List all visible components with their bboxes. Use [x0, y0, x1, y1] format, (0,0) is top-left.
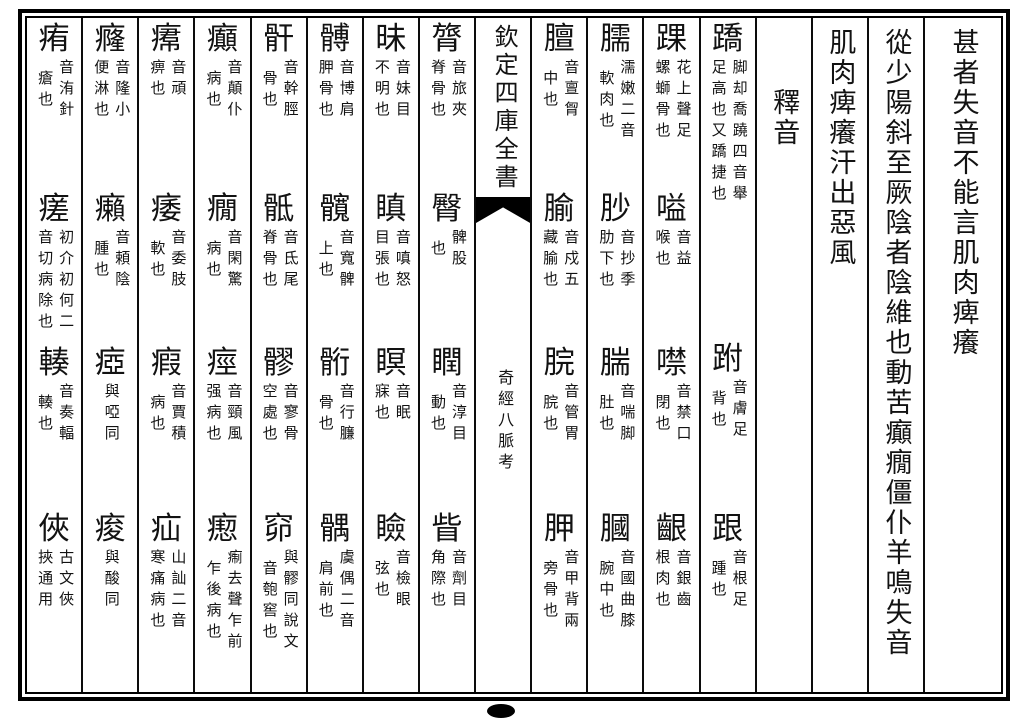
gloss-headword: 腨: [588, 346, 642, 381]
gloss-entry: 瞤音淳目動也: [420, 346, 474, 452]
gloss-entry: 臀髀股也: [420, 192, 474, 277]
gloss-headword: 瞼: [364, 512, 418, 547]
gloss-entry: 髃虞偶二音肩前也: [308, 512, 362, 639]
glossary-column: 骭音幹脛骨也骶音氐尾脊骨也髎音寥骨空處也窌與髎同說文音匏窖也: [250, 18, 306, 692]
gloss-annotation: 音洧針瘡也: [33, 59, 75, 123]
gloss-entry: 膂音旅夾脊骨也: [420, 22, 474, 128]
glossary-column: 蹻脚却喬蹺四音舉足高也又蹻捷也跗音膚足背也跟音根足踵也: [699, 18, 755, 692]
gloss-annotation: 音喘脚肚也: [594, 383, 636, 447]
gloss-annotation: 濡嫩二音軟肉也: [594, 59, 636, 144]
glossary-column: 膂音旅夾脊骨也臀髀股也瞤音淳目動也眥音劑目角際也: [418, 18, 474, 692]
gloss-annotation: 與酸同: [100, 549, 121, 613]
gloss-entry: 膻音亶胷中也: [532, 22, 586, 128]
gloss-annotation: 音委肢軟也: [145, 229, 187, 293]
page-columns: 甚者失音不能言肌肉痺癢從少陽斜至厥陰者陰維也動苦癲癇僵仆羊鳴失音肌肉痺癢汗出惡風…: [25, 16, 1003, 694]
gloss-headword: 𤸷: [139, 22, 193, 57]
glossary-column: 癲音顛仆病也癇音閑驚病也痙音頸風强病也瘛痸去聲乍前乍後病也: [193, 18, 249, 692]
gloss-annotation: 音劑目角際也: [426, 549, 468, 613]
gloss-annotation: 音銀齒根肉也: [650, 549, 692, 613]
gloss-entry: 胛音甲背兩旁骨也: [532, 512, 586, 639]
gloss-annotation: 音膚足背也: [707, 379, 749, 443]
page-edge-ink-dot-icon: [487, 704, 515, 718]
gloss-headword: 瞤: [420, 346, 474, 381]
gloss-entry: 䯒音行臁骨也: [308, 346, 362, 452]
gloss-headword: 䏚: [588, 192, 642, 227]
gloss-headword: 痠: [83, 512, 137, 547]
main-text-line-3: 肌肉痺癢汗出惡風: [811, 18, 867, 692]
main-text-line-1: 甚者失音不能言肌肉痺癢: [923, 18, 1001, 692]
gloss-headword: 膂: [420, 22, 474, 57]
gloss-entry: 俠古文俠挾通用: [27, 512, 81, 618]
gloss-annotation: 音甲背兩旁骨也: [538, 549, 580, 634]
gloss-entry: 腨音喘脚肚也: [588, 346, 642, 452]
gloss-annotation: 痸去聲乍前乍後病也: [201, 549, 243, 655]
gloss-annotation: 音眠寐也: [370, 383, 412, 426]
gloss-headword: 窌: [252, 512, 306, 547]
gloss-headword: 踝: [644, 22, 698, 57]
gloss-entry: 瘥初介初何二音切病除也: [27, 192, 81, 340]
glossary-column: 膻音亶胷中也腧音戍五藏腧也脘音管胃脘也胛音甲背兩旁骨也: [530, 18, 586, 692]
glossary-column: 昧音妹目不明也瞋音嗔怒目張也瞑音眠寐也瞼音檢眼弦也: [362, 18, 418, 692]
gloss-annotation: 音戍五藏腧也: [538, 229, 580, 293]
gloss-headword: 髃: [308, 512, 362, 547]
gloss-headword: 腧: [532, 192, 586, 227]
gloss-entry: 癃音隆小便淋也: [83, 22, 137, 128]
gloss-annotation: 音行臁骨也: [314, 383, 356, 447]
gloss-annotation: 與啞同: [100, 383, 121, 447]
gloss-entry: 窌與髎同說文音匏窖也: [252, 512, 306, 660]
gloss-entry: 痏音洧針瘡也: [27, 22, 81, 128]
gloss-headword: 癲: [195, 22, 249, 57]
gloss-entry: 癩音頼陰腫也: [83, 192, 137, 298]
gloss-entry: 腧音戍五藏腧也: [532, 192, 586, 298]
gloss-annotation: 音閑驚病也: [201, 229, 243, 293]
gloss-annotation: 音幹脛骨也: [258, 59, 300, 123]
gloss-entry: 髎音寥骨空處也: [252, 346, 306, 452]
gloss-headword: 瘂: [83, 346, 137, 381]
gloss-entry: 髆音博肩胛骨也: [308, 22, 362, 128]
gloss-annotation: 音博肩胛骨也: [314, 59, 356, 123]
gloss-entry: 疝山訕二音寒痛病也: [139, 512, 193, 639]
gloss-entry: 踝花上聲足螺螄骨也: [644, 22, 698, 149]
gloss-entry: 痠與酸同: [83, 512, 137, 618]
gloss-headword: 跟: [701, 512, 755, 547]
gloss-entry: 髖音寬髀上也: [308, 192, 362, 298]
glossary-column: 髆音博肩胛骨也髖音寬髀上也䯒音行臁骨也髃虞偶二音肩前也: [306, 18, 362, 692]
gloss-entry: 𤸷音頑痹也: [139, 22, 193, 107]
gloss-annotation: 音根足踵也: [707, 549, 749, 613]
gloss-entry: 輳音奏輻輳也: [27, 346, 81, 452]
gloss-annotation: 山訕二音寒痛病也: [145, 549, 187, 634]
gloss-headword: 臑: [588, 22, 642, 57]
gloss-entry: 蹻脚却喬蹺四音舉足高也又蹻捷也: [701, 22, 755, 212]
main-text-line-1-text: 甚者失音不能言肌肉痺癢: [950, 28, 977, 358]
gloss-headword: 嗌: [644, 192, 698, 227]
gloss-headword: 俠: [27, 512, 81, 547]
section-heading: 釋音: [755, 18, 811, 692]
gloss-entry: 嗌音益喉也: [644, 192, 698, 277]
gloss-headword: 痙: [195, 346, 249, 381]
glossary-column: 癃音隆小便淋也癩音頼陰腫也瘂與啞同痠與酸同: [81, 18, 137, 692]
gloss-headword: 眥: [420, 512, 474, 547]
main-text-line-2: 從少陽斜至厥陰者陰維也動苦癲癇僵仆羊鳴失音: [867, 18, 923, 692]
gloss-headword: 髖: [308, 192, 362, 227]
main-text-line-2-text: 從少陽斜至厥陰者陰維也動苦癲癇僵仆羊鳴失音: [882, 28, 909, 658]
gloss-entry: 癲音顛仆病也: [195, 22, 249, 128]
gloss-entry: 齦音銀齒根肉也: [644, 512, 698, 618]
gloss-entry: 癇音閑驚病也: [195, 192, 249, 298]
gloss-annotation: 音頸風强病也: [201, 383, 243, 447]
gloss-annotation: 虞偶二音肩前也: [314, 549, 356, 634]
glossary-column: 臑濡嫩二音軟肉也䏚音抄季肋下也腨音喘脚肚也膕音國曲膝腕中也: [586, 18, 642, 692]
gloss-entry: 骭音幹脛骨也: [252, 22, 306, 128]
gloss-headword: 痿: [139, 192, 193, 227]
page-frame: 甚者失音不能言肌肉痺癢從少陽斜至厥陰者陰維也動苦癲癇僵仆羊鳴失音肌肉痺癢汗出惡風…: [18, 9, 1010, 701]
gloss-headword: 輳: [27, 346, 81, 381]
gloss-annotation: 音旅夾脊骨也: [426, 59, 468, 123]
gloss-headword: 癩: [83, 192, 137, 227]
book-title: 欽定四庫全書: [491, 24, 515, 192]
gloss-entry: 瘂與啞同: [83, 346, 137, 452]
gloss-entry: 骶音氐尾脊骨也: [252, 192, 306, 298]
gloss-entry: 痿音委肢軟也: [139, 192, 193, 298]
gloss-annotation: 音隆小便淋也: [89, 59, 131, 123]
gloss-annotation: 音亶胷中也: [538, 59, 580, 123]
gutter-column: 欽定四庫全書奇經八脈考: [474, 18, 530, 692]
gloss-entry: 膕音國曲膝腕中也: [588, 512, 642, 639]
gloss-headword: 癇: [195, 192, 249, 227]
gloss-headword: 癃: [83, 22, 137, 57]
work-title: 奇經八脈考: [495, 369, 511, 474]
gloss-annotation: 音顛仆病也: [201, 59, 243, 123]
gloss-annotation: 音頑痹也: [145, 59, 187, 102]
gloss-headword: 瘥: [27, 192, 81, 227]
gloss-annotation: 音淳目動也: [426, 383, 468, 447]
gloss-headword: 昧: [364, 22, 418, 57]
gloss-headword: 瞑: [364, 346, 418, 381]
gloss-headword: 跗: [701, 342, 755, 377]
gloss-entry: 跟音根足踵也: [701, 512, 755, 618]
glossary-column: 痏音洧針瘡也瘥初介初何二音切病除也輳音奏輻輳也俠古文俠挾通用: [27, 18, 81, 692]
gloss-entry: 瘕音賈積病也: [139, 346, 193, 452]
gloss-entry: 痙音頸風强病也: [195, 346, 249, 452]
gloss-entry: 眥音劑目角際也: [420, 512, 474, 618]
gloss-annotation: 音寥骨空處也: [258, 383, 300, 447]
gloss-annotation: 音國曲膝腕中也: [594, 549, 636, 634]
section-heading-text: 釋音: [770, 88, 797, 148]
gloss-headword: 膻: [532, 22, 586, 57]
main-text-line-3-text: 肌肉痺癢汗出惡風: [826, 28, 853, 268]
gloss-annotation: 音禁口閉也: [650, 383, 692, 447]
fishtail-icon: [476, 197, 530, 223]
gloss-annotation: 花上聲足螺螄骨也: [650, 59, 692, 144]
gloss-entry: 噤音禁口閉也: [644, 346, 698, 452]
gloss-entry: 脘音管胃脘也: [532, 346, 586, 452]
gloss-annotation: 音寬髀上也: [314, 229, 356, 293]
gloss-annotation: 脚却喬蹺四音舉足高也又蹻捷也: [707, 59, 749, 207]
gloss-annotation: 髀股也: [426, 229, 468, 272]
gloss-headword: 噤: [644, 346, 698, 381]
gloss-headword: 髆: [308, 22, 362, 57]
gloss-headword: 瘛: [195, 512, 249, 547]
gloss-annotation: 音賈積病也: [145, 383, 187, 447]
gloss-entry: 瞋音嗔怒目張也: [364, 192, 418, 298]
gloss-annotation: 音頼陰腫也: [89, 229, 131, 293]
gloss-annotation: 音檢眼弦也: [370, 549, 412, 613]
gloss-annotation: 音抄季肋下也: [594, 229, 636, 293]
glossary-column: 𤸷音頑痹也痿音委肢軟也瘕音賈積病也疝山訕二音寒痛病也: [137, 18, 193, 692]
gloss-headword: 瘕: [139, 346, 193, 381]
gloss-headword: 臀: [420, 192, 474, 227]
gloss-entry: 跗音膚足背也: [701, 342, 755, 448]
gloss-headword: 疝: [139, 512, 193, 547]
gloss-headword: 骭: [252, 22, 306, 57]
gloss-annotation: 音益喉也: [650, 229, 692, 272]
gloss-headword: 瞋: [364, 192, 418, 227]
gloss-annotation: 與髎同說文音匏窖也: [258, 549, 300, 655]
gloss-entry: 瞑音眠寐也: [364, 346, 418, 431]
gloss-headword: 齦: [644, 512, 698, 547]
gloss-entry: 臑濡嫩二音軟肉也: [588, 22, 642, 149]
gloss-annotation: 古文俠挾通用: [33, 549, 75, 613]
gloss-headword: 痏: [27, 22, 81, 57]
gloss-headword: 胛: [532, 512, 586, 547]
gloss-entry: 䏚音抄季肋下也: [588, 192, 642, 298]
gloss-entry: 昧音妹目不明也: [364, 22, 418, 128]
gloss-annotation: 音管胃脘也: [538, 383, 580, 447]
gloss-headword: 髎: [252, 346, 306, 381]
gloss-entry: 瞼音檢眼弦也: [364, 512, 418, 618]
glossary-column: 踝花上聲足螺螄骨也嗌音益喉也噤音禁口閉也齦音銀齒根肉也: [642, 18, 698, 692]
gloss-headword: 膕: [588, 512, 642, 547]
gloss-annotation: 音嗔怒目張也: [370, 229, 412, 293]
gloss-annotation: 音妹目不明也: [370, 59, 412, 123]
gloss-headword: 䯒: [308, 346, 362, 381]
gloss-headword: 脘: [532, 346, 586, 381]
gloss-entry: 瘛痸去聲乍前乍後病也: [195, 512, 249, 660]
gloss-annotation: 音奏輻輳也: [33, 383, 75, 447]
gloss-annotation: 初介初何二音切病除也: [33, 229, 75, 335]
gloss-annotation: 音氐尾脊骨也: [258, 229, 300, 293]
gloss-headword: 骶: [252, 192, 306, 227]
gloss-headword: 蹻: [701, 22, 755, 57]
